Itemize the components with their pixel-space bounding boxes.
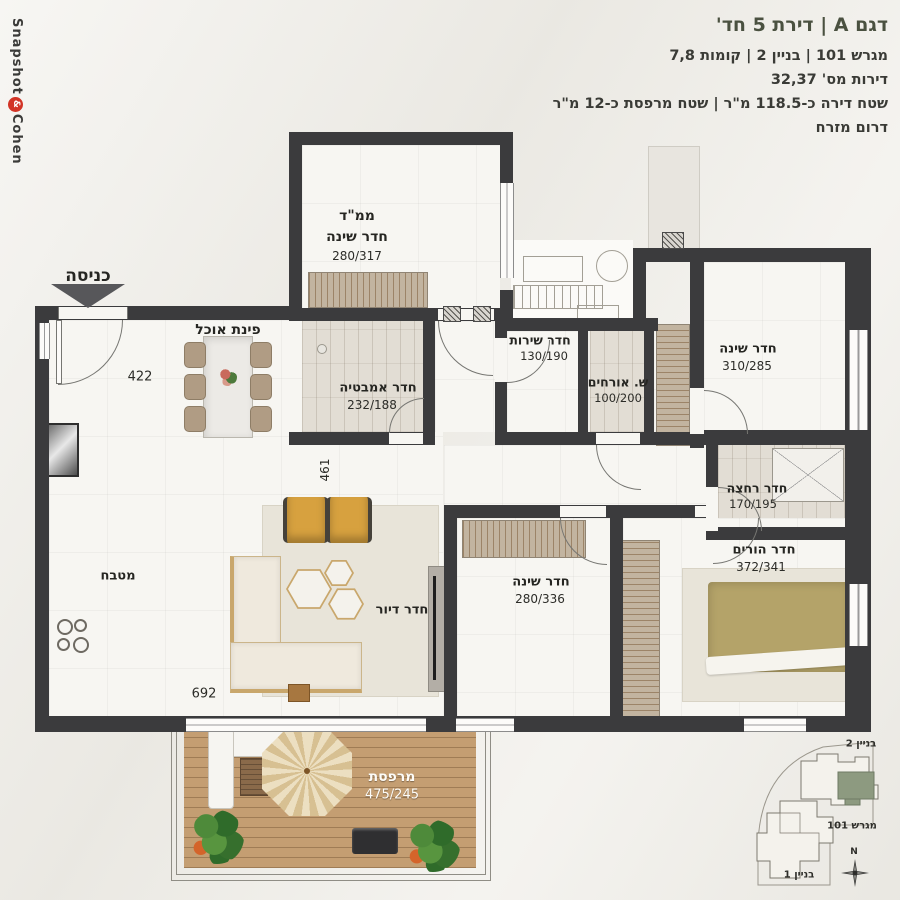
entrance-label: כניסה — [65, 266, 111, 286]
armchair — [283, 497, 329, 543]
window-bedroom-right — [849, 330, 868, 430]
balcony-sliding-door — [186, 718, 426, 732]
compass-north-label: N — [850, 847, 858, 857]
structural-column — [443, 306, 461, 322]
wall — [444, 505, 457, 730]
label-mamad-sub: חדר שינה — [326, 229, 388, 245]
label-bathroom: חדר אמבטיה — [339, 381, 416, 396]
table-flowers — [219, 368, 237, 386]
label-kitchen: מטבח — [100, 569, 135, 584]
logo-word1: Snapshot — [9, 18, 24, 95]
window-master-side — [849, 584, 868, 646]
bbq-grill — [352, 828, 398, 854]
wall — [423, 308, 435, 445]
wall — [495, 318, 658, 331]
dining-chair — [184, 374, 206, 400]
header-apartments-line: דירות מס' 32,37 — [553, 68, 888, 92]
dims-guest-wc: 100/200 — [594, 391, 642, 405]
label-master: חדר הורים — [732, 543, 795, 558]
wall — [289, 132, 302, 321]
dining-chair — [250, 374, 272, 400]
wall — [289, 132, 513, 145]
bathtub-drain — [317, 344, 327, 354]
header-lot-line: מגרש 101 | בניין 2 | קומות 7,8 — [553, 44, 888, 68]
floor-corridor — [444, 445, 706, 505]
site-plan — [745, 733, 895, 893]
core-column-circle — [596, 250, 628, 282]
label-bedroom-right: חדר שינה — [719, 342, 776, 357]
armchair — [326, 497, 372, 543]
bedroom-middle-door-gap — [560, 506, 606, 517]
wall — [610, 505, 623, 730]
site-label-lot: מגרש 101 — [827, 821, 877, 832]
tv-console — [428, 566, 445, 692]
balcony-sofa-side — [208, 729, 234, 809]
window — [39, 323, 50, 359]
plant — [406, 820, 460, 872]
dims-bedroom-middle: 280/336 — [515, 592, 565, 606]
label-bedroom-middle: חדר שינה — [512, 575, 569, 590]
label-mamad: ממ"ד — [339, 208, 375, 224]
elevator-outline — [523, 256, 583, 282]
coffee-table-hex — [326, 560, 352, 586]
label-balcony: מרפסת — [369, 769, 416, 785]
dims-bathroom: 232/188 — [347, 398, 397, 412]
label-dining: פינת אוכל — [195, 322, 261, 338]
label-guest-wc: ש. אורחים — [588, 375, 648, 390]
dim-hall-depth: 461 — [318, 459, 332, 482]
coffee-table-hex — [330, 588, 362, 620]
master-door-gap — [695, 506, 710, 517]
site-label-building2: בניין 2 — [846, 739, 876, 750]
wall — [35, 306, 49, 730]
window-master — [744, 718, 806, 732]
plant — [190, 810, 244, 864]
site-plan-highlight-unit — [838, 772, 874, 799]
burner — [57, 619, 73, 635]
plan-header: דגם A | דירת 5 חד' מגרש 101 | בניין 2 | … — [553, 14, 888, 140]
plan-title: דגם A | דירת 5 חד' — [553, 14, 888, 36]
site-label-building1: בניין 1 — [784, 870, 814, 881]
dim-entry-width: 422 — [128, 370, 153, 385]
structural-column — [662, 232, 684, 249]
dims-washroom: 170/195 — [729, 497, 777, 511]
header-area-line: שטח דירה כ-118.5 מ"ר | שטח מרפסת כ-12 מ"… — [553, 92, 888, 116]
dims-service: 130/190 — [520, 349, 568, 363]
tv-screen — [433, 576, 436, 680]
entrance-door-gap — [58, 307, 128, 319]
window-mamad — [500, 183, 514, 278]
compass-icon — [840, 858, 870, 888]
label-washroom: חדר רחצה — [727, 481, 788, 496]
wall — [845, 248, 871, 718]
dims-balcony: 475/245 — [365, 788, 419, 803]
dining-chair — [184, 406, 206, 432]
umbrella-pole — [304, 768, 310, 774]
closet-mamad — [308, 272, 428, 308]
hall-closet — [656, 324, 690, 446]
brand-logo: Snapshot&Cohen — [8, 18, 24, 165]
mirror-art — [47, 423, 79, 477]
dining-chair — [250, 406, 272, 432]
dims-master: 372/341 — [736, 560, 786, 574]
burner — [73, 637, 89, 653]
dining-chair — [250, 342, 272, 368]
service-door-gap — [495, 338, 507, 382]
logo-word2: Cohen — [9, 114, 24, 165]
dining-chair — [184, 342, 206, 368]
logo-ampersand-icon: & — [8, 97, 23, 112]
guest-wc-door-gap — [596, 433, 640, 444]
label-living: חדר דיור — [376, 603, 429, 618]
structural-column — [473, 306, 491, 322]
dim-living-width: 692 — [192, 687, 217, 702]
bathroom-door-gap — [389, 433, 423, 444]
side-table — [288, 684, 310, 702]
dining-table — [203, 336, 253, 438]
entrance-arrow-icon — [51, 284, 125, 308]
floorplan-canvas: Snapshot&Cohen דגם A | דירת 5 חד' מגרש 1… — [0, 0, 900, 900]
bedroom-right-door-gap — [690, 388, 704, 434]
dims-bedroom-right: 310/285 — [722, 359, 772, 373]
burner — [74, 619, 87, 632]
label-service: חדר שירות — [509, 333, 570, 348]
dims-mamad: 280/317 — [332, 249, 382, 263]
header-direction-line: דרום מזרח — [553, 116, 888, 140]
burner — [57, 638, 70, 651]
wall — [578, 320, 588, 440]
window-bedroom-middle — [456, 718, 514, 732]
wall — [633, 248, 859, 262]
